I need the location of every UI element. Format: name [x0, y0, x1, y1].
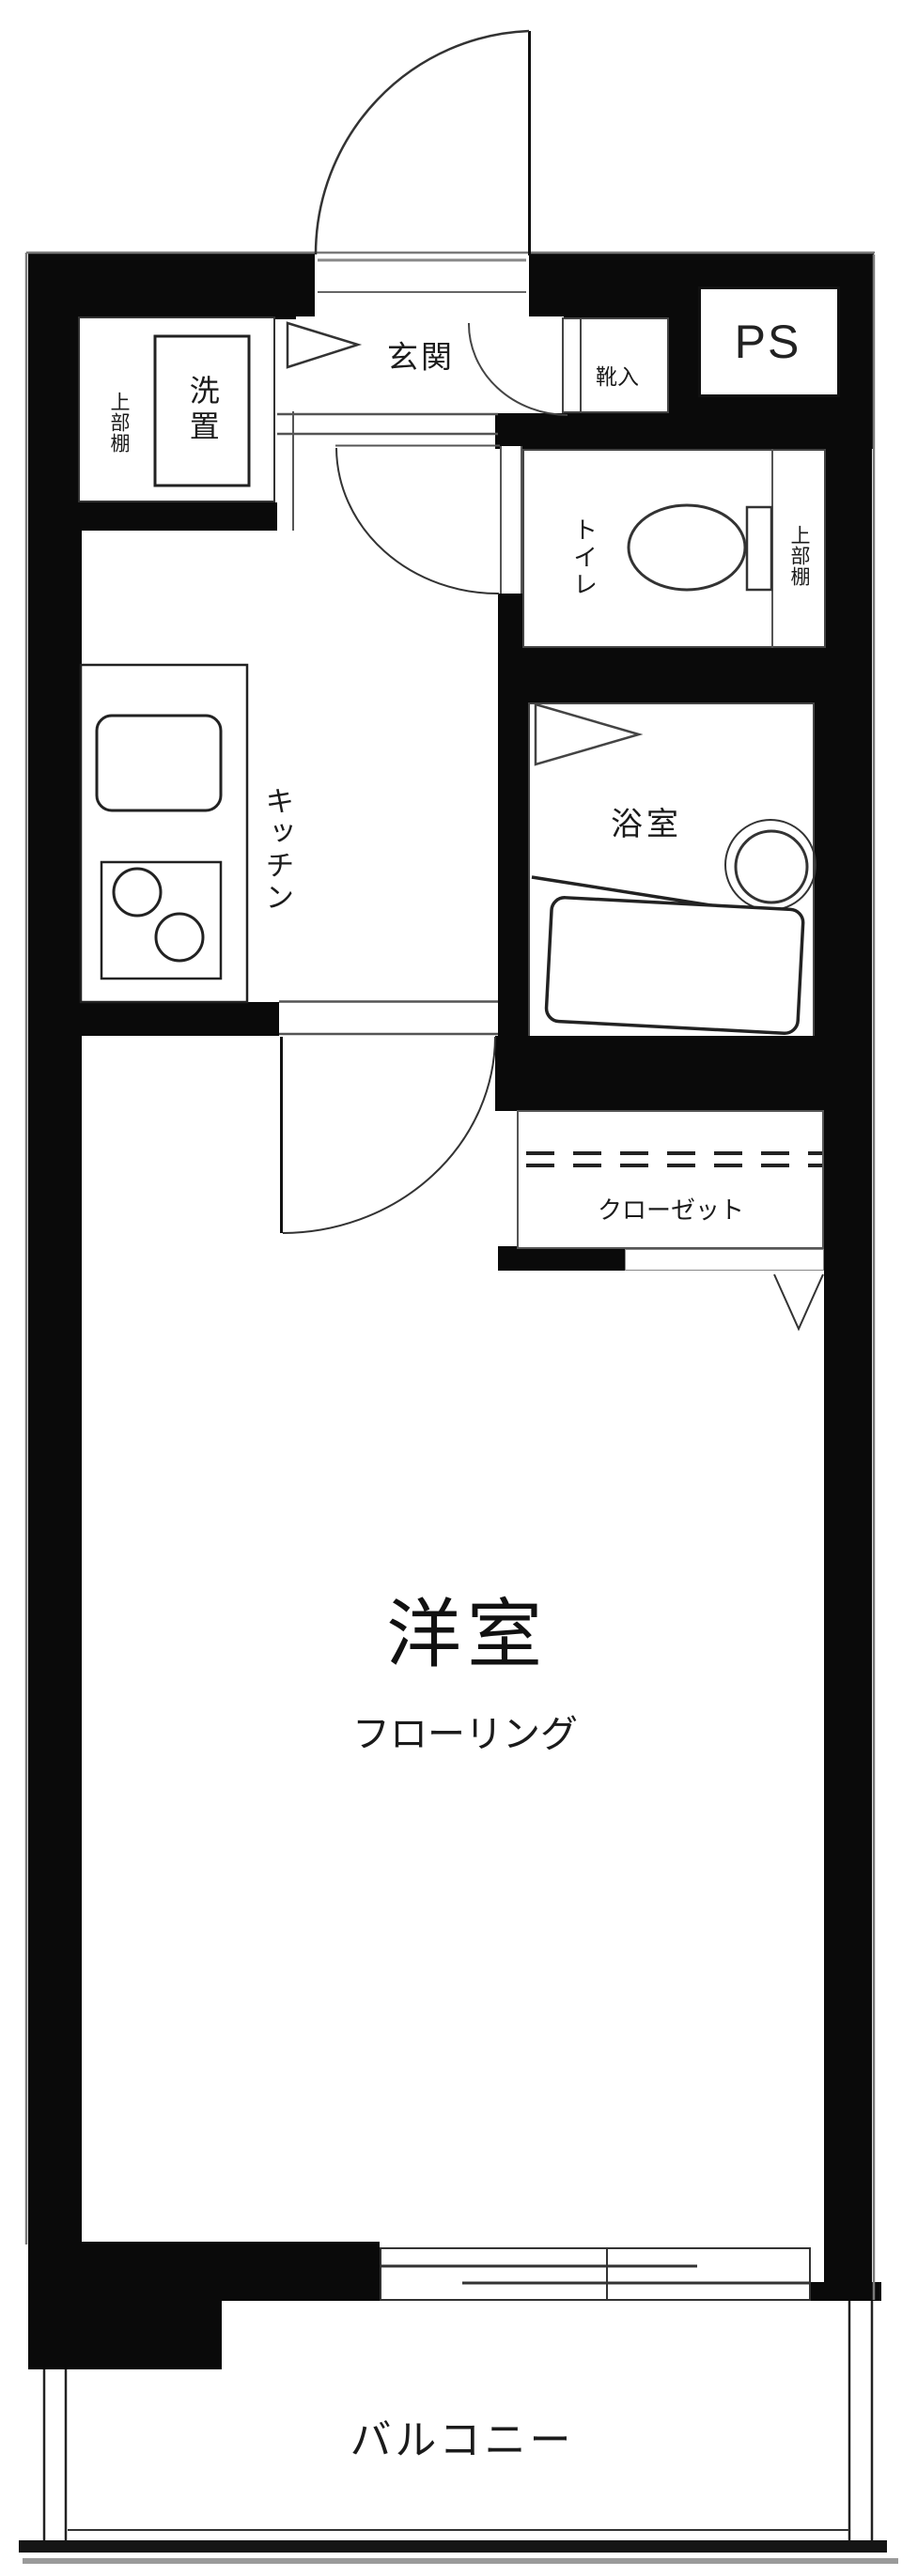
- label-shoe-cabinet: 靴入: [596, 365, 639, 388]
- front-door-arc: [316, 31, 529, 255]
- closet-box: [517, 1110, 824, 1249]
- wall-closet-top: [495, 1036, 872, 1111]
- label-kitchen: キッチン: [261, 786, 292, 914]
- toilet-room: [522, 449, 826, 648]
- wall-laundry-bottom: [28, 502, 294, 531]
- balcony-outer-line: [23, 2558, 898, 2564]
- label-toilet-upper-shelf: 上部棚: [788, 525, 809, 587]
- wall-left-column: [28, 254, 82, 2301]
- label-closet: クローゼット: [598, 1197, 744, 1223]
- wall-hall-toilet-top: [495, 411, 824, 449]
- room-doorway: [279, 1000, 498, 1036]
- label-laundry-upper-shelf: 上部棚: [108, 392, 129, 454]
- bathroom-room: [528, 702, 815, 1045]
- wall-right-column: [824, 319, 872, 2299]
- closet-track-strip: [625, 1249, 824, 1271]
- wall-bottom-left-block: [28, 2242, 222, 2369]
- wall-closet-bottom-left: [498, 1246, 625, 1271]
- label-flooring: フローリング: [352, 1715, 578, 1754]
- wall-bottom-right-stub: [811, 2282, 881, 2301]
- label-washer-space: 洗置: [186, 375, 218, 446]
- label-toilet: トイレ: [570, 517, 596, 599]
- wall-toilet-bath-band: [495, 648, 872, 702]
- floor-plan: 玄関 靴入 PS トイレ 上部棚 上部棚 洗置 キッチン 浴室 クローゼット 洋…: [0, 0, 902, 2576]
- corridor-upper: [277, 411, 495, 531]
- wall-kitchen-room: [82, 1002, 279, 1036]
- wall-bottom-window-left: [222, 2242, 380, 2301]
- label-main-room: 洋室: [386, 1596, 548, 1674]
- corridor-door-leaf: [500, 446, 522, 594]
- balcony-rail-bottom: [19, 2540, 887, 2553]
- window-sliding: [380, 2247, 811, 2301]
- label-entrance: 玄関: [387, 342, 455, 375]
- label-pipe-space: PS: [735, 317, 801, 367]
- kitchen-area: [82, 531, 498, 1002]
- entrance-threshold: [316, 255, 528, 316]
- label-balcony: バルコニー: [350, 2419, 574, 2462]
- label-bathroom: 浴室: [611, 809, 682, 842]
